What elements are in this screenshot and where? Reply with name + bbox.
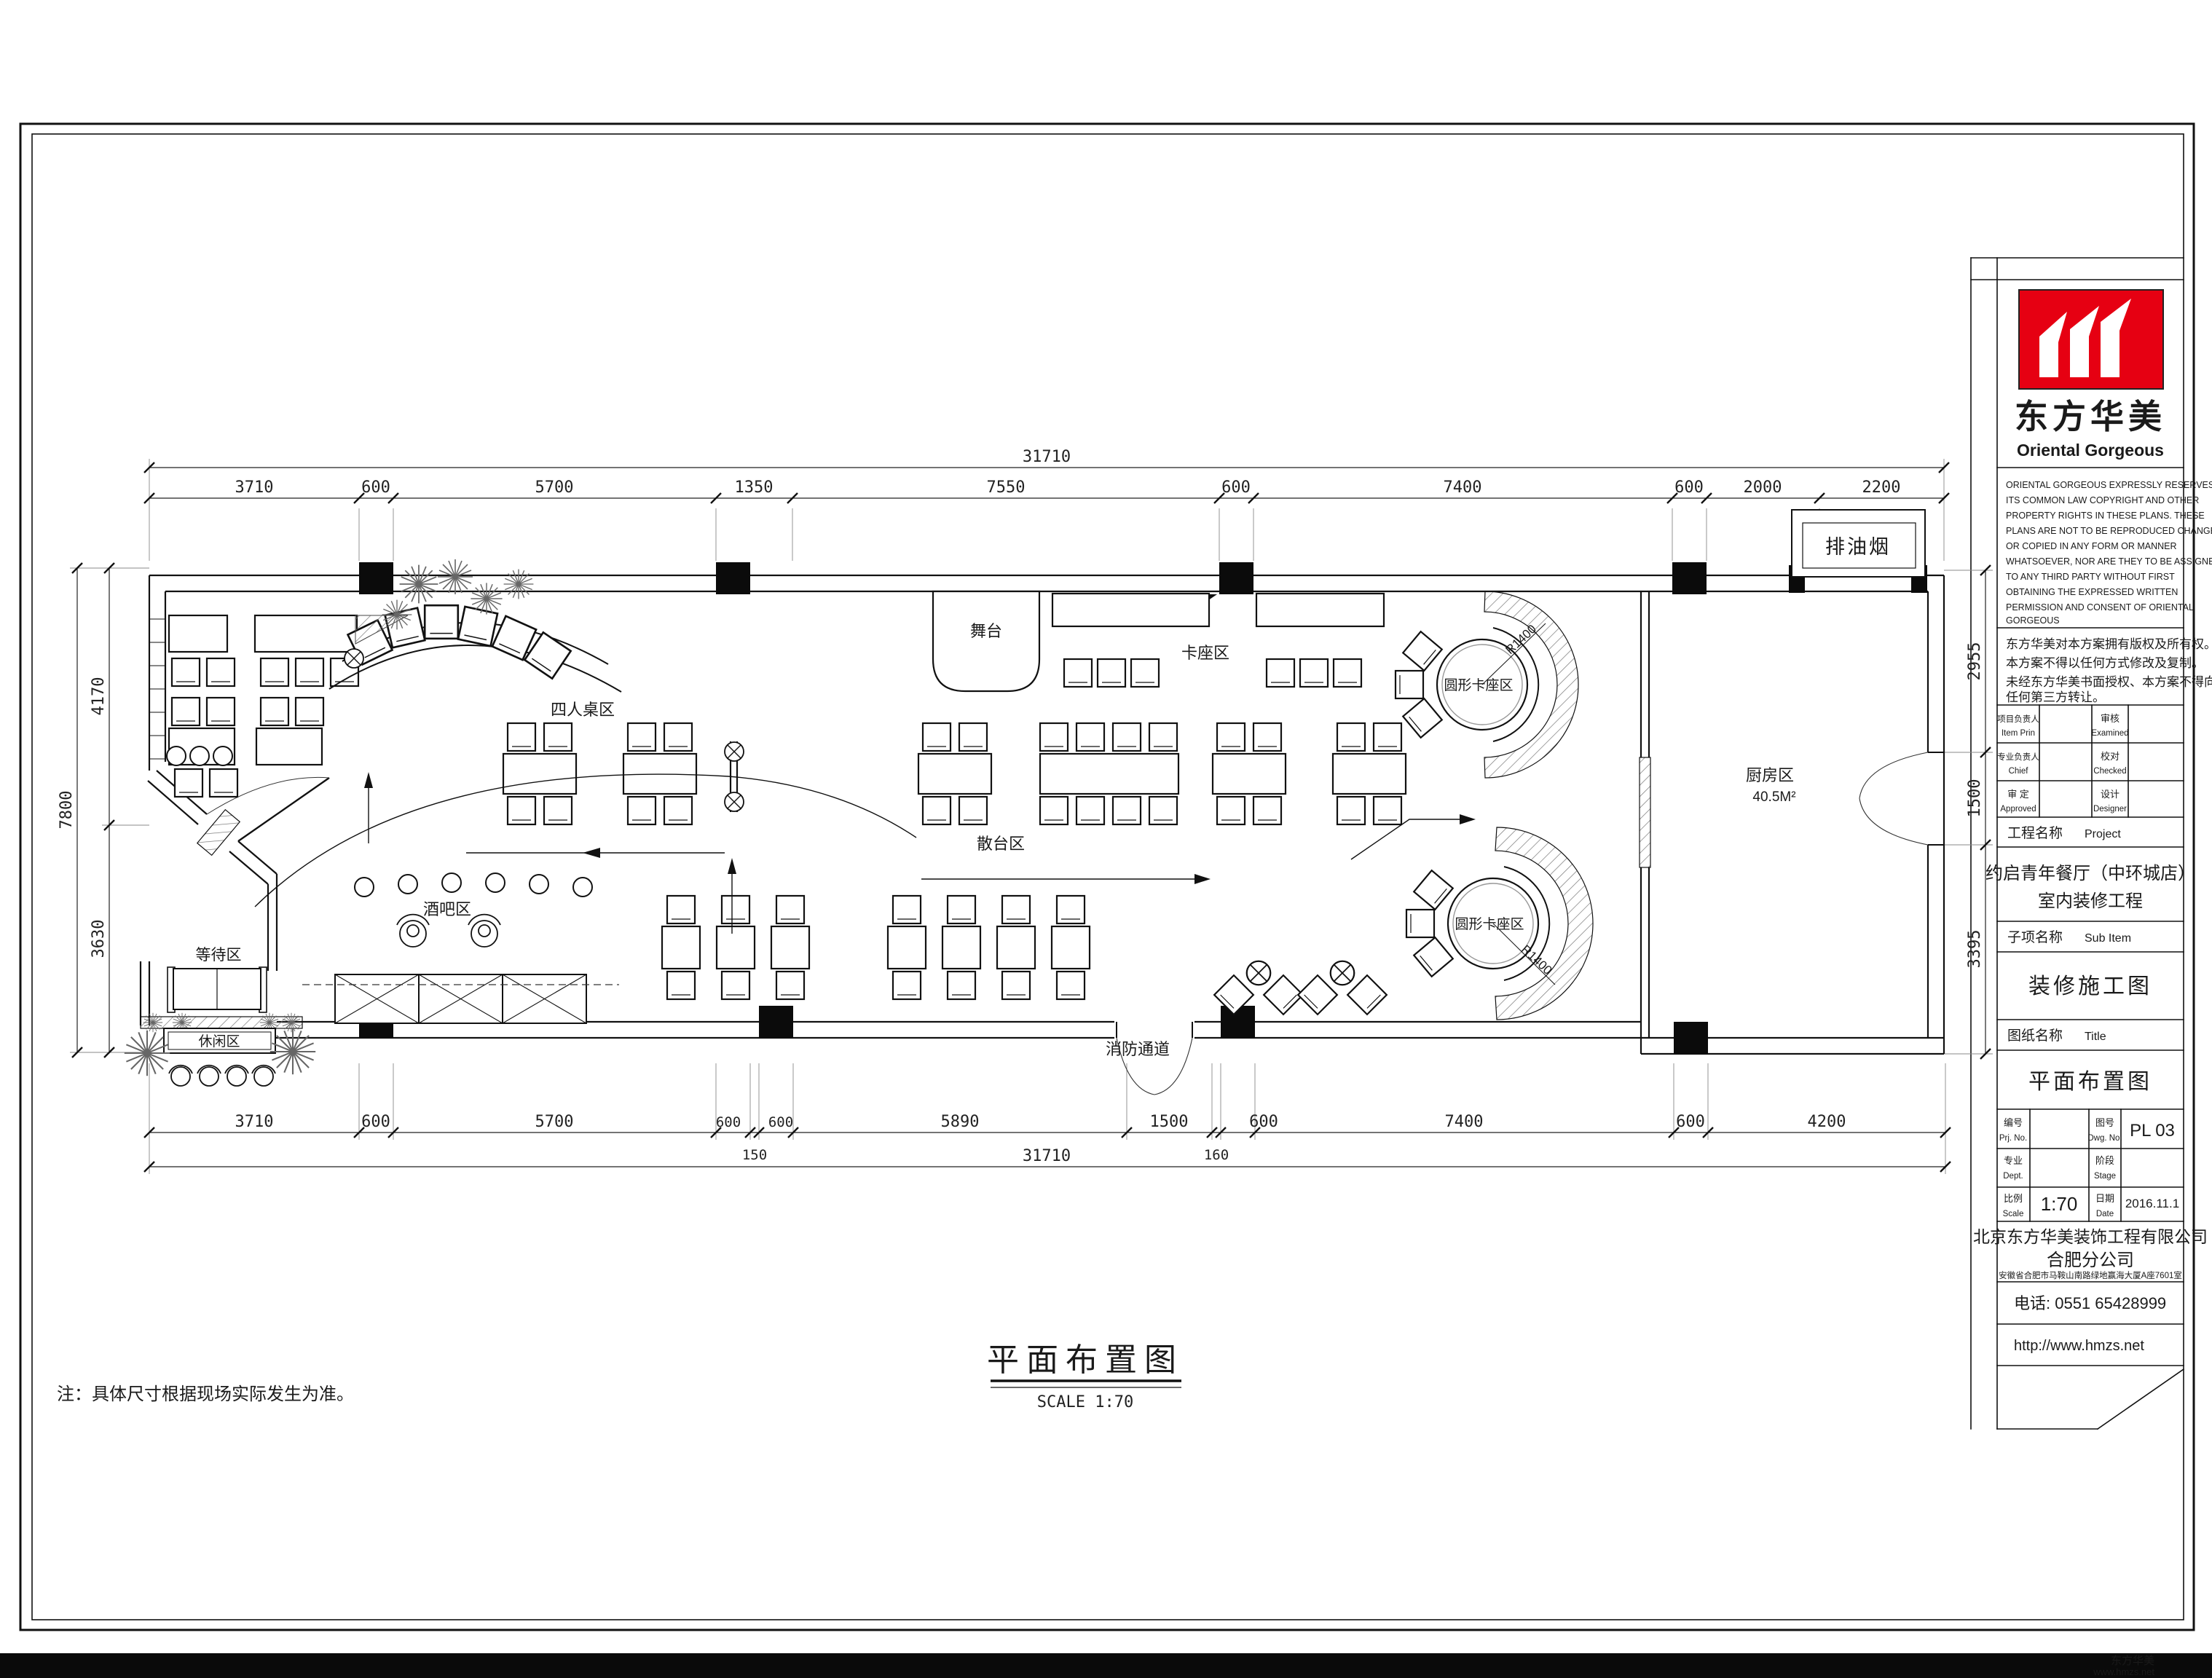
svg-text:31710: 31710 [1023, 1147, 1071, 1165]
four-table-label: 四人桌区 [551, 701, 615, 719]
dimensions-bottom: 3710 600 5700 600 150 600 5890 1500 160 … [144, 1063, 1951, 1174]
svg-text:600: 600 [1249, 1113, 1278, 1131]
svg-text:任何第三方转让。: 任何第三方转让。 [2006, 690, 2105, 704]
svg-text:7800: 7800 [58, 791, 76, 830]
stage-label: 舞台 [970, 622, 1002, 640]
date-value: 2016.11.1 [2125, 1197, 2179, 1210]
svg-text:Date: Date [2096, 1210, 2114, 1218]
drawing-number: PL 03 [2130, 1121, 2175, 1141]
svg-text:5700: 5700 [535, 1113, 574, 1131]
radius-label: R1400 [1503, 622, 1539, 657]
svg-text:专业负责人: 专业负责人 [1997, 752, 2039, 762]
svg-text:编号: 编号 [2004, 1117, 2023, 1128]
wall-booth-benches: 卡座区 [1052, 594, 1384, 687]
svg-text:2200: 2200 [1862, 478, 1901, 497]
watermark-strip: 东方华美 www.hmzs.net [0, 1653, 2212, 1678]
logo-cn: 东方华美 [2015, 398, 2166, 436]
svg-text:Scale: Scale [2003, 1210, 2024, 1218]
plan-title: 平面布置图 [987, 1342, 1184, 1378]
subitem-label: 子项名称 [2007, 929, 2063, 945]
svg-text:Approved: Approved [2000, 805, 2036, 814]
svg-text:OBTAINING THE EXPRESSED WRITTE: OBTAINING THE EXPRESSED WRITTEN [2006, 587, 2178, 597]
watermark-company: 东方华美 [2111, 1655, 2154, 1667]
company-name-1: 北京东方华美装饰工程有限公司 [1973, 1227, 2208, 1246]
svg-text:600: 600 [361, 1113, 390, 1131]
svg-text:审核: 审核 [2101, 713, 2119, 724]
svg-text:3710: 3710 [235, 1113, 274, 1131]
svg-text:3395: 3395 [1966, 930, 1984, 969]
bartender-figures [397, 915, 500, 947]
plant-icon [400, 565, 438, 604]
svg-text:600: 600 [1674, 478, 1704, 497]
round-booth-upper: 圆形卡座区 R1400 [1396, 591, 1578, 778]
stage: 舞台 [933, 591, 1039, 691]
svg-text:600: 600 [768, 1114, 793, 1130]
svg-text:阶段: 阶段 [2095, 1155, 2114, 1166]
svg-text:审 定: 审 定 [2007, 789, 2029, 800]
dimensions-top: 31710 3710 600 5700 1350 7550 600 7400 6… [144, 448, 1949, 561]
project-name-1: 约启青年餐厅（中环城店） [1985, 864, 2195, 883]
right-double-door [1859, 752, 1944, 845]
svg-text:Checked: Checked [2093, 767, 2126, 776]
subitem-value: 装修施工图 [2028, 974, 2152, 998]
svg-text:Chief: Chief [2009, 767, 2029, 776]
svg-text:ITS COMMON LAW COPYRIGHT AND O: ITS COMMON LAW COPYRIGHT AND OTHER [2006, 495, 2199, 505]
fire-exit-door: 消防通道 [1106, 1022, 1192, 1095]
kitchen-door-screen [1640, 757, 1650, 867]
company-phone: 电话: 0551 65428999 [2014, 1294, 2166, 1312]
svg-text:Prj. No.: Prj. No. [1999, 1134, 2027, 1143]
plan-scale-note: SCALE 1:70 [1037, 1393, 1133, 1411]
fume-label: 排油烟 [1825, 536, 1891, 558]
sheetname-label: 图纸名称 [2007, 1028, 2063, 1044]
copyright-chinese: 东方华美对本方案拥有版权及所有权。 本方案不得以任何方式修改及复制。 未经东方华… [2006, 637, 2212, 704]
svg-text:160: 160 [1204, 1147, 1229, 1163]
svg-text:Examined: Examined [2091, 729, 2128, 738]
round-booth-lower: 圆形卡座区 R1400 [1406, 827, 1593, 1020]
svg-text:4200: 4200 [1808, 1113, 1846, 1131]
sheetname-value: 平面布置图 [2028, 1070, 2152, 1094]
copyright-english: ORIENTAL GORGEOUS EXPRESSLY RESERVES ITS… [2006, 480, 2212, 626]
waiting-leisure-wing: 等待区 休闲区 [125, 947, 315, 1086]
signature-table: 项目负责人 Item Prin 审核 Examined 专业负责人 Chief … [1997, 713, 2128, 814]
sheet-note: 注：具体尺寸根据现场实际发生为准。 [57, 1384, 354, 1404]
floor-plan-svg: 东方华美 Oriental Gorgeous ORIENTAL GORGEOUS… [0, 0, 2212, 1678]
kitchen-zone: 厨房区 40.5M² [1746, 766, 1796, 805]
svg-text:600: 600 [361, 478, 390, 497]
svg-text:未经东方华美书面授权、本方案不得向: 未经东方华美书面授权、本方案不得向 [2006, 675, 2212, 689]
drawing-sheet: 东方华美 Oriental Gorgeous ORIENTAL GORGEOUS… [0, 0, 2212, 1678]
svg-text:Item Prin: Item Prin [2002, 729, 2035, 738]
logo-en: Oriental Gorgeous [2017, 441, 2164, 460]
svg-text:7550: 7550 [987, 478, 1026, 497]
company-website: http://www.hmzs.net [2014, 1338, 2144, 1354]
company-logo: 东方华美 Oriental Gorgeous [2015, 290, 2166, 460]
plan-title-group: 平面布置图 SCALE 1:70 [987, 1342, 1184, 1411]
svg-text:7400: 7400 [1444, 478, 1482, 497]
round-booth-label-2: 圆形卡座区 [1455, 916, 1524, 932]
company-address: 安徽省合肥市马鞍山南路绿地赢海大厦A座7601室 [1999, 1270, 2182, 1280]
project-name-2: 室内装修工程 [2038, 891, 2143, 911]
svg-text:Dwg. No.: Dwg. No. [2087, 1134, 2122, 1143]
fire-exit-label: 消防通道 [1106, 1040, 1170, 1058]
svg-text:WHATSOEVER, NOR ARE THEY TO BE: WHATSOEVER, NOR ARE THEY TO BE ASSIGNED [2006, 556, 2212, 567]
svg-text:校对: 校对 [2101, 751, 2119, 762]
company-name-2: 合肥分公司 [2047, 1250, 2134, 1270]
project-label-en: Project [2085, 828, 2121, 840]
svg-text:1500: 1500 [1150, 1113, 1189, 1131]
svg-text:Designer: Designer [2093, 805, 2127, 814]
dimensions-right: 2955 1500 3395 [1944, 565, 1993, 1059]
svg-text:PROPERTY RIGHTS IN THESE PLANS: PROPERTY RIGHTS IN THESE PLANS. THESE [2006, 511, 2205, 521]
svg-text:ORIENTAL GORGEOUS EXPRESSLY RE: ORIENTAL GORGEOUS EXPRESSLY RESERVES [2006, 480, 2212, 490]
svg-text:TO ANY THIRD PARTY WITHOUT FIR: TO ANY THIRD PARTY WITHOUT FIRST [2006, 572, 2175, 582]
scatter-label: 散台区 [977, 835, 1025, 853]
svg-text:600: 600 [716, 1114, 741, 1130]
svg-text:图号: 图号 [2095, 1117, 2114, 1128]
subitem-label-en: Sub Item [2085, 932, 2131, 945]
svg-text:3710: 3710 [235, 478, 274, 497]
svg-text:PLANS ARE NOT TO BE REPRODUCED: PLANS ARE NOT TO BE REPRODUCED CHANGED [2006, 526, 2212, 536]
title-block: 东方华美 Oriental Gorgeous ORIENTAL GORGEOUS… [1971, 258, 2212, 1429]
svg-text:设计: 设计 [2101, 789, 2119, 800]
svg-text:150: 150 [742, 1147, 767, 1163]
scale-value: 1:70 [2041, 1193, 2078, 1215]
svg-text:本方案不得以任何方式修改及复制。: 本方案不得以任何方式修改及复制。 [2006, 656, 2204, 670]
svg-text:1350: 1350 [735, 478, 774, 497]
svg-text:2000: 2000 [1744, 478, 1782, 497]
svg-text:Dept.: Dept. [2003, 1172, 2023, 1181]
watermark-site: www.hmzs.net [2093, 1666, 2154, 1677]
middle-table-row: 散台区 [503, 723, 1406, 853]
fume-exhaust-box: 排油烟 [1792, 510, 1925, 577]
project-label: 工程名称 [2007, 825, 2063, 841]
svg-text:4170: 4170 [90, 677, 108, 716]
svg-text:比例: 比例 [2004, 1193, 2023, 1204]
svg-text:31710: 31710 [1023, 448, 1071, 466]
diagonal-table-sets [1214, 961, 1387, 1015]
kitchen-label: 厨房区 [1746, 766, 1794, 784]
svg-text:日期: 日期 [2095, 1193, 2114, 1204]
dimensions-left: 7800 4170 3630 [58, 563, 149, 1057]
svg-text:项目负责人: 项目负责人 [1997, 714, 2039, 724]
svg-text:OR COPIED IN ANY FORM OR MANNE: OR COPIED IN ANY FORM OR MANNER [2006, 541, 2177, 551]
svg-text:3630: 3630 [90, 920, 108, 958]
svg-text:600: 600 [1221, 478, 1251, 497]
bar-label: 酒吧区 [423, 900, 471, 918]
svg-text:Stage: Stage [2094, 1172, 2116, 1181]
svg-text:PERMISSION AND CONSENT OF ORIE: PERMISSION AND CONSENT OF ORIENTAL [2006, 602, 2194, 612]
svg-text:5890: 5890 [941, 1113, 980, 1131]
svg-text:7400: 7400 [1445, 1113, 1484, 1131]
structural-columns [359, 562, 1927, 1054]
leisure-label: 休闲区 [198, 1033, 240, 1049]
waiting-label: 等待区 [196, 947, 242, 964]
svg-text:专业: 专业 [2004, 1155, 2023, 1166]
sheetname-label-en: Title [2085, 1031, 2106, 1043]
svg-text:600: 600 [1676, 1113, 1705, 1131]
svg-text:2955: 2955 [1966, 642, 1984, 681]
bottom-table-clusters [662, 896, 1090, 999]
round-booth-label: 圆形卡座区 [1444, 677, 1513, 693]
svg-text:GORGEOUS: GORGEOUS [2006, 615, 2060, 626]
svg-text:东方华美对本方案拥有版权及所有权。: 东方华美对本方案拥有版权及所有权。 [2006, 637, 2212, 651]
kitchen-area-label: 40.5M² [1752, 789, 1795, 805]
booth-label: 卡座区 [1181, 644, 1229, 662]
svg-text:1500: 1500 [1966, 779, 1984, 818]
svg-text:5700: 5700 [535, 478, 574, 497]
